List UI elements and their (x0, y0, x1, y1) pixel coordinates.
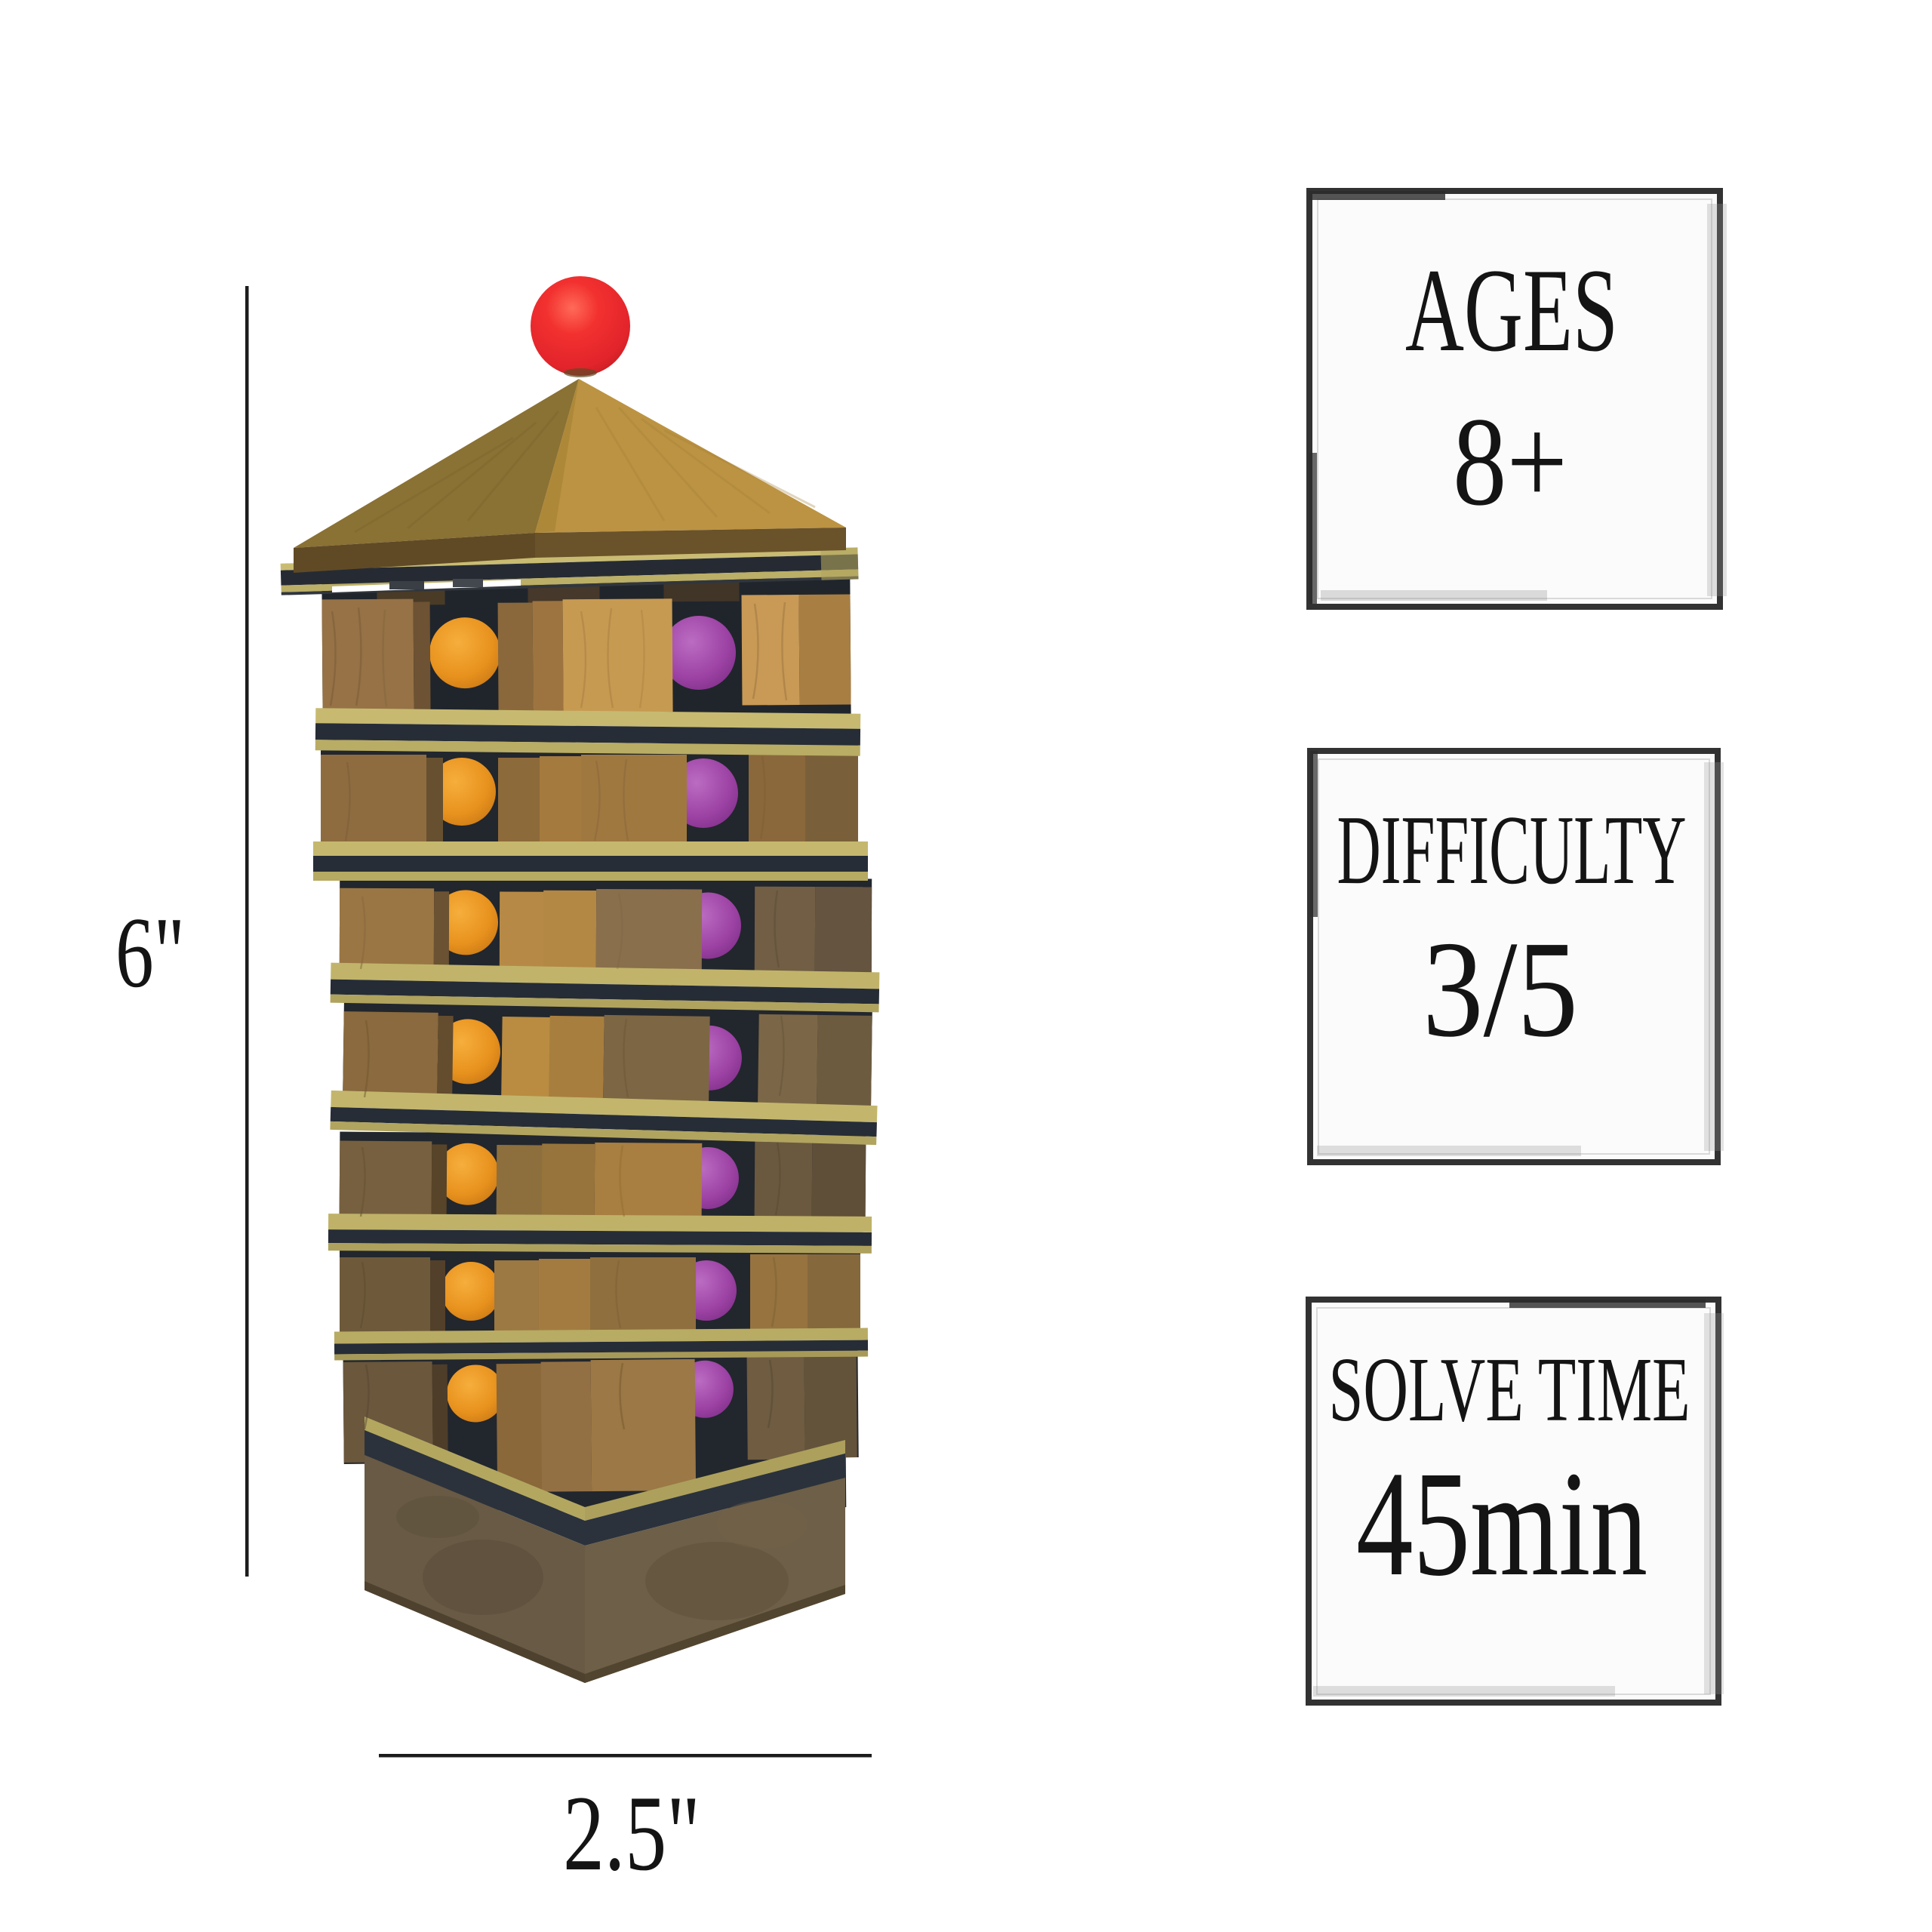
svg-text:DIFFICULTY: DIFFICULTY (1337, 795, 1687, 905)
svg-text:6": 6" (115, 897, 185, 1008)
svg-text:2.5": 2.5" (563, 1774, 700, 1893)
svg-text:3/5: 3/5 (1423, 912, 1578, 1066)
svg-text:SOLVE TIME: SOLVE TIME (1329, 1339, 1690, 1441)
svg-text:AGES: AGES (1405, 245, 1618, 377)
svg-text:8+: 8+ (1453, 392, 1567, 532)
svg-text:45min: 45min (1356, 1441, 1647, 1607)
